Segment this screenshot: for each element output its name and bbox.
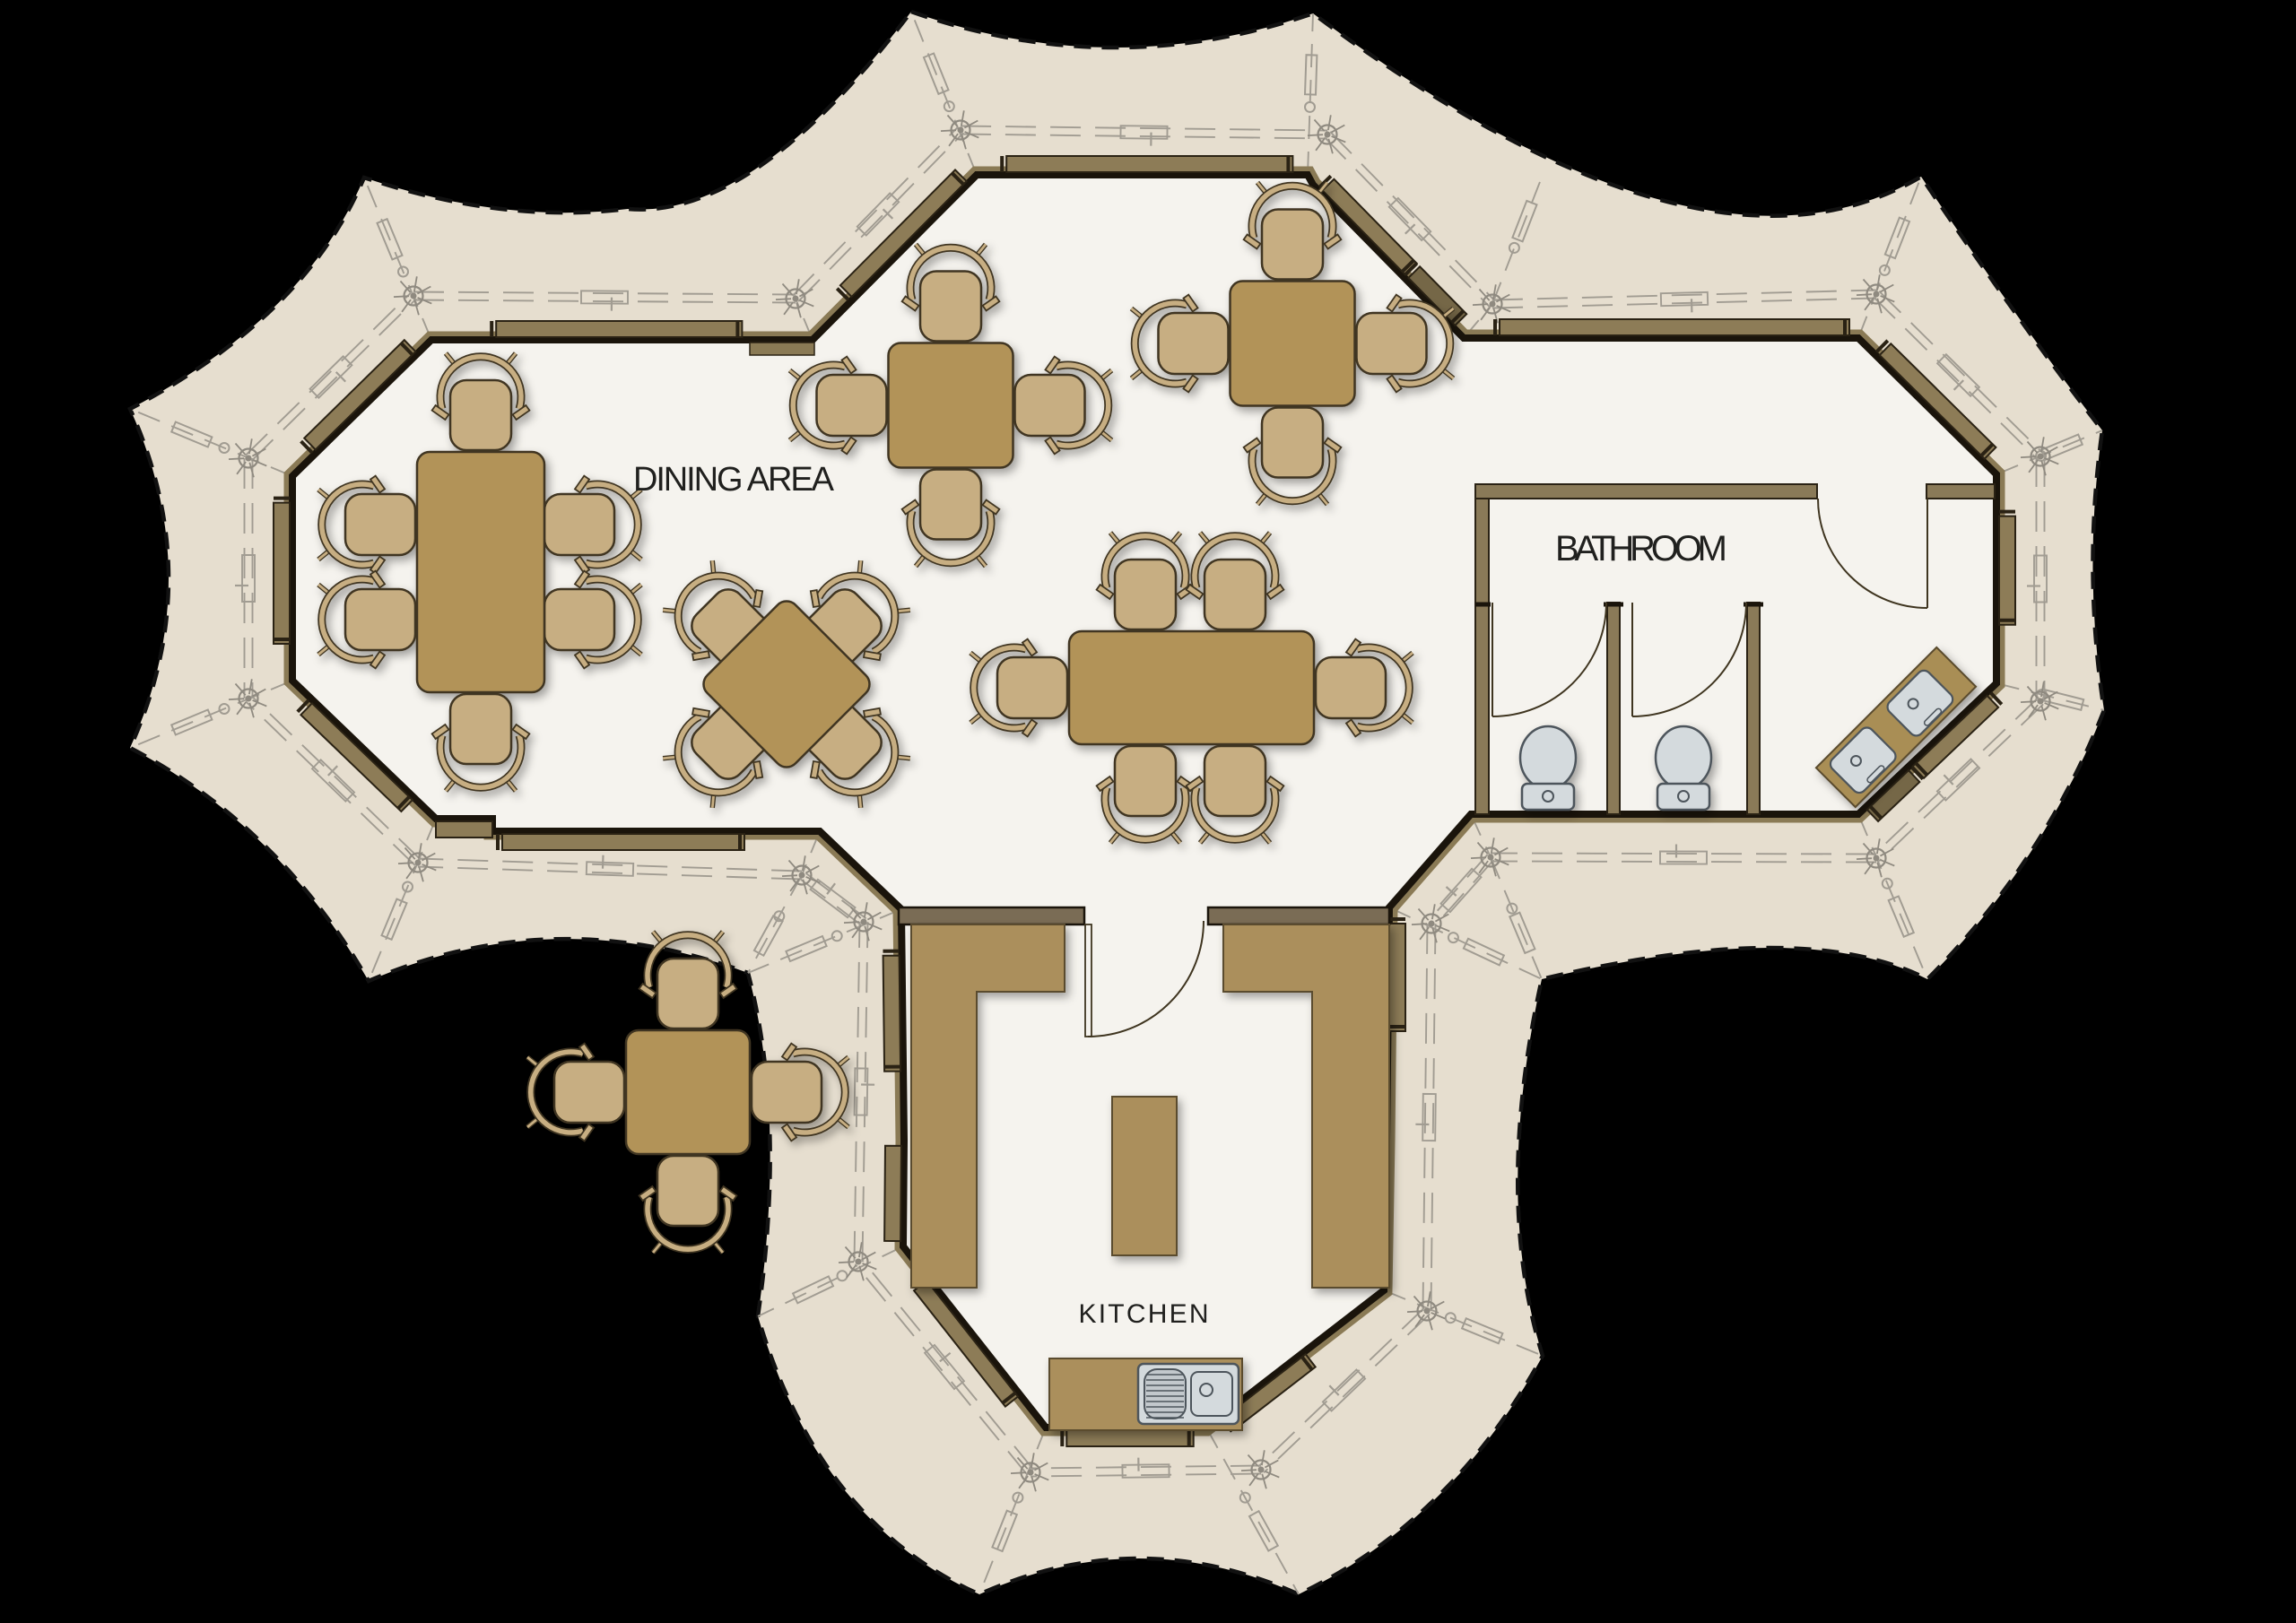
svg-text:BATHROOM: BATHROOM: [1555, 529, 1727, 568]
svg-text:KITCHEN: KITCHEN: [1079, 1299, 1209, 1329]
svg-text:DINING AREA: DINING AREA: [633, 461, 835, 499]
